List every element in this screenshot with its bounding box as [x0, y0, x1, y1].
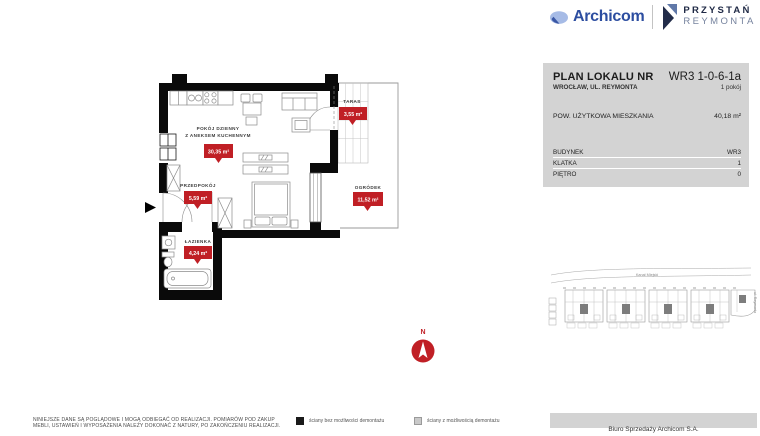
archicom-logo-text: Archicom [573, 8, 644, 26]
legend-item-fixed-walls: ściany bez możliwości demontażu [296, 417, 384, 425]
floor-value: 0 [737, 171, 741, 178]
przystan-reymonta-logo: PRZYSTAŃ REYMONTA [661, 3, 755, 30]
canal-label: Kanał Miejski [636, 273, 659, 277]
usable-area-value: 40,18 m² [714, 113, 741, 120]
staircase-label: KLATKA [553, 160, 577, 167]
unit-rooms: 1 pokój [721, 84, 741, 91]
svg-text:3,55 m²: 3,55 m² [344, 112, 362, 118]
unit-address: WROCŁAW, UL. REYMONTA [553, 84, 638, 91]
floor-label: PIĘTRO [553, 171, 576, 178]
building-label: BUDYNEK [553, 149, 583, 156]
table-row: KLATKA 1 [553, 157, 741, 168]
svg-text:4,24 m²: 4,24 m² [189, 251, 207, 257]
table-row: BUDYNEK WR3 [553, 147, 741, 157]
svg-text:5,59 m²: 5,59 m² [189, 196, 207, 202]
floor-plan-sheet: { "brand": { "archicom": "Archicom", "pr… [0, 0, 760, 428]
fixed-wall-swatch [296, 417, 304, 425]
brand-divider [652, 5, 653, 29]
removable-wall-label: ściany z możliwością demontażu [427, 418, 500, 424]
hallway-label: PRZEDPOKÓJ [180, 181, 216, 188]
garden-label: OGRÓDEK [355, 183, 382, 190]
svg-text:11,52 m²: 11,52 m² [358, 197, 379, 203]
usable-area-label: POW. UŻYTKOWA MIESZKANIA [553, 113, 654, 120]
staircase-value: 1 [737, 160, 741, 167]
north-compass: N [404, 324, 442, 368]
unit-info-panel: PLAN LOKALU NR WR3 1-0-6-1a WROCŁAW, UL.… [543, 63, 749, 187]
sideboards [243, 153, 288, 174]
table-row: PIĘTRO 0 [553, 168, 741, 179]
sales-office-box: Biuro Sprzedaży Archicom S.A. [550, 413, 757, 428]
site-plan-map: Kanał Miejski ul. Reymonta [543, 262, 759, 336]
entrance-arrow-icon [145, 202, 156, 213]
building-value: WR3 [727, 149, 741, 156]
hallway-area-badge: 5,59 m² [184, 191, 212, 209]
sales-office-label: Biuro Sprzedaży Archicom S.A. [608, 426, 698, 433]
removable-wall-swatch [414, 417, 422, 425]
terrace-label: TARAS [343, 99, 360, 104]
dining-set [241, 94, 262, 125]
project-name-line1: PRZYSTAŃ [683, 6, 755, 17]
apartment-floor-plan: POKÓJ DZIENNY Z ANEKSEM KUCHENNYM PRZEDP… [140, 70, 430, 320]
site-left-strip [549, 298, 556, 325]
archicom-logo-icon [549, 8, 570, 26]
project-name-line2: REYMONTA [683, 17, 755, 28]
unit-details-table: BUDYNEK WR3 KLATKA 1 PIĘTRO 0 [553, 147, 741, 179]
fixed-wall-label: ściany bez możliwości demontażu [309, 418, 384, 424]
svg-text:30,35 m²: 30,35 m² [208, 149, 229, 155]
garden-area-badge: 11,52 m² [353, 192, 383, 211]
building-footprints [565, 290, 755, 328]
sofa [282, 93, 317, 132]
unit-number: WR3 1-0-6-1a [669, 71, 741, 83]
przystan-logo-icon [661, 3, 678, 30]
panel-title: PLAN LOKALU NR [553, 71, 654, 83]
living-area-badge: 30,35 m² [204, 144, 233, 163]
archicom-logo: Archicom [549, 8, 644, 26]
street-label: ul. Reymonta [753, 292, 757, 313]
bathroom-area-badge: 4,24 m² [184, 246, 212, 264]
bathroom-label: ŁAZIENKA [185, 239, 212, 244]
living-room-label-line1: POKÓJ DZIENNY [197, 124, 240, 131]
kitchen-fixtures [170, 91, 233, 105]
utility-boxes [160, 134, 176, 160]
terrace-area-badge: 3,55 m² [339, 107, 367, 125]
window-right [310, 173, 321, 222]
brand-bar: Archicom PRZYSTAŃ REYMONTA [549, 3, 756, 30]
north-label: N [420, 329, 425, 336]
bed [244, 182, 298, 228]
living-room-label-line2: Z ANEKSEM KUCHENNYM [185, 133, 251, 138]
legend-item-removable-walls: ściany z możliwością demontażu [414, 417, 500, 425]
